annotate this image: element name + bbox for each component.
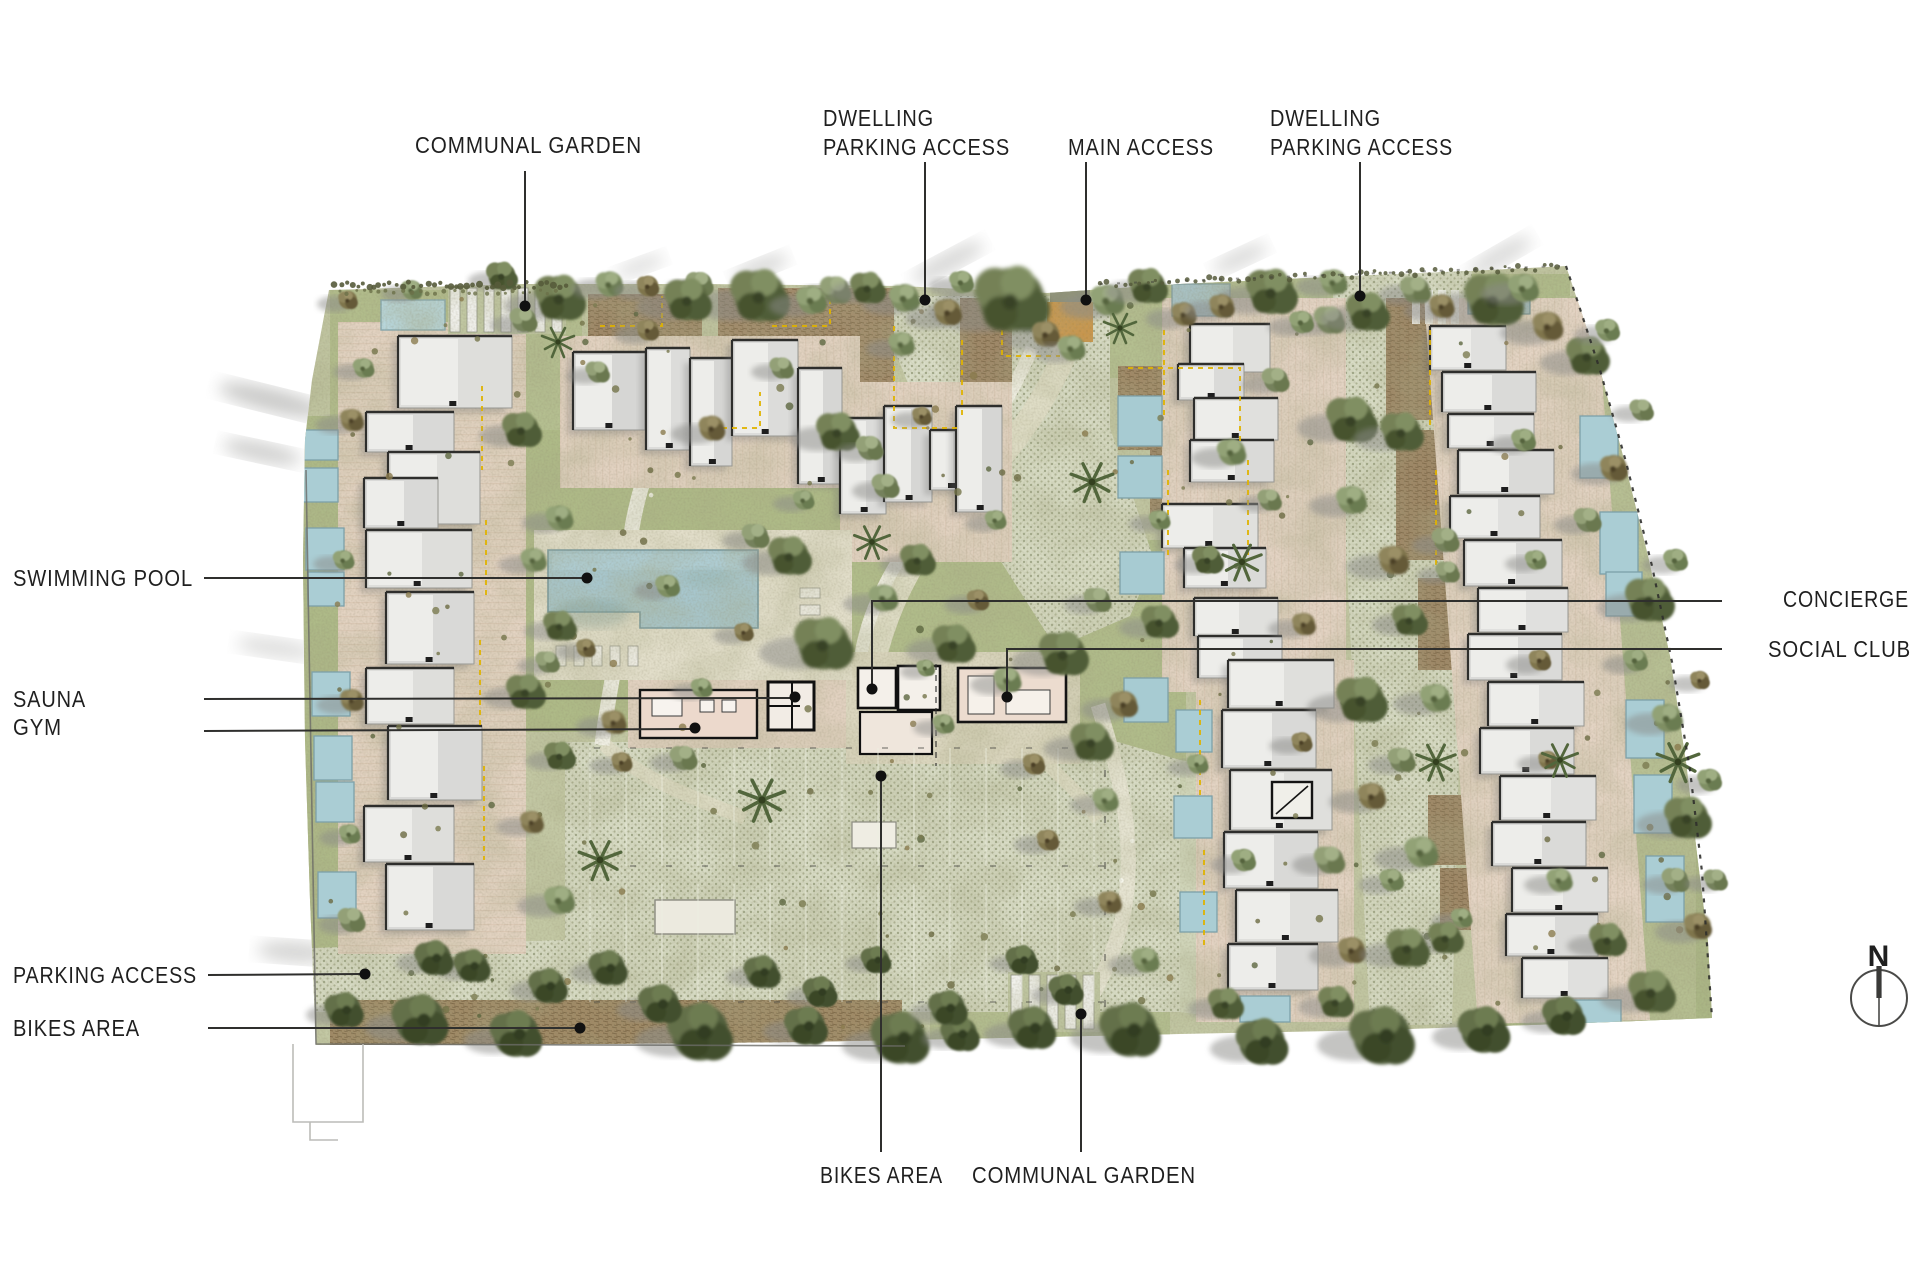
svg-text:BIKES AREA: BIKES AREA [820,1162,943,1188]
svg-text:COMMUNAL GARDEN: COMMUNAL GARDEN [972,1162,1196,1188]
svg-text:N: N [1868,940,1891,973]
svg-text:DWELLING: DWELLING [1270,105,1381,131]
svg-text:PARKING ACCESS: PARKING ACCESS [13,962,197,988]
svg-text:BIKES AREA: BIKES AREA [13,1015,140,1041]
svg-text:COMMUNAL GARDEN: COMMUNAL GARDEN [415,132,642,158]
svg-text:DWELLING: DWELLING [823,105,934,131]
svg-text:SOCIAL CLUB: SOCIAL CLUB [1768,636,1911,662]
svg-text:MAIN ACCESS: MAIN ACCESS [1068,134,1214,160]
svg-text:SWIMMING POOL: SWIMMING POOL [13,565,193,591]
svg-text:SAUNA: SAUNA [13,686,86,712]
svg-text:GYM: GYM [13,714,62,740]
svg-text:PARKING ACCESS: PARKING ACCESS [1270,134,1453,160]
svg-text:CONCIERGE: CONCIERGE [1783,586,1909,612]
svg-text:PARKING ACCESS: PARKING ACCESS [823,134,1010,160]
